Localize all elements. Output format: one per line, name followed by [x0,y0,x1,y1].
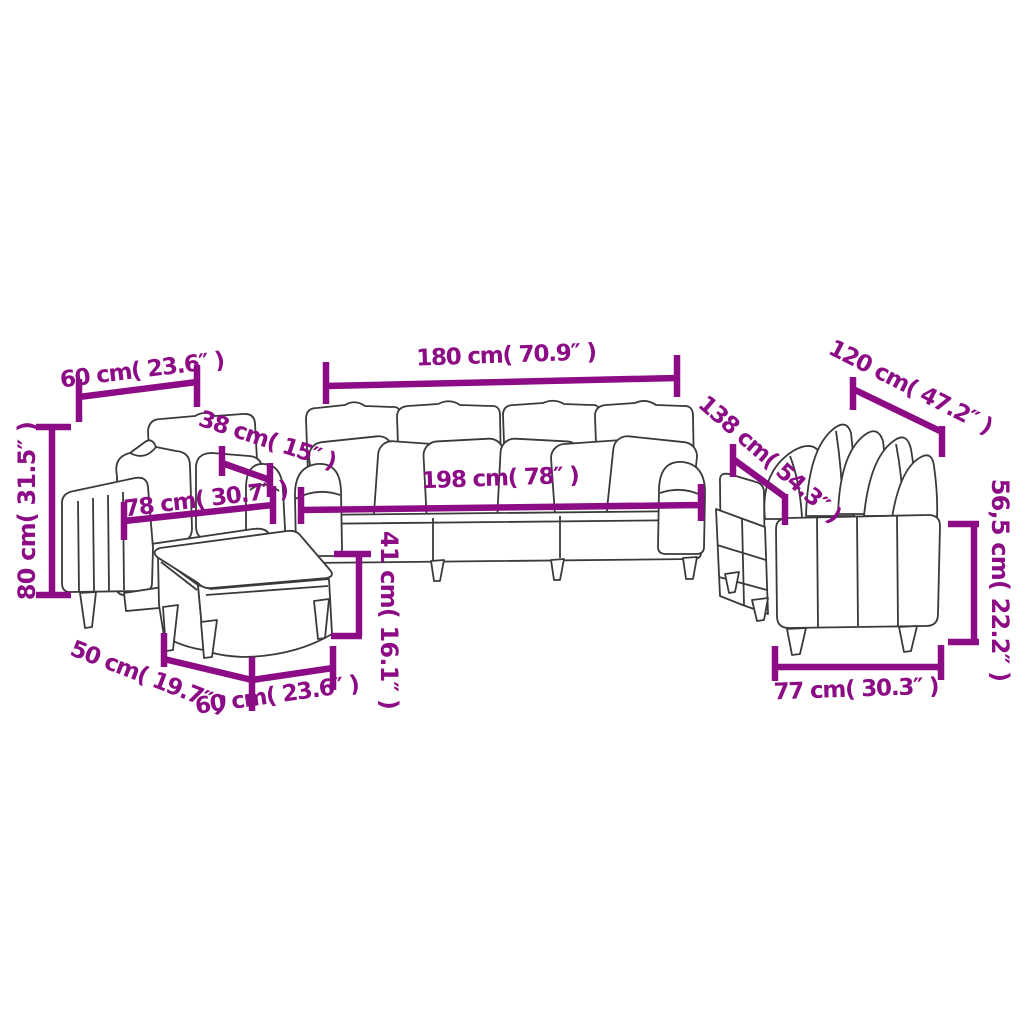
dim-sofa2-height [948,524,979,642]
dim-label-sofa2-height: 56,5 cm( 22.2″ ) [988,479,1012,682]
sofa2-leg [752,598,768,621]
armchair-leg [80,592,96,628]
sofa2-leg [787,628,806,655]
dim-label-footstool-height: 41 cm( 16.1″ ) [377,531,401,709]
dim-label-sofa2-depth: 77 cm( 30.3″ ) [773,676,939,705]
dim-label-armchair-height: 80 cm( 31.5″ ) [15,422,39,600]
dim-label-sofa3-back-width: 180 cm( 70.9″ ) [416,341,596,370]
footstool-drawing [155,531,332,658]
sofa2-leg [899,626,917,652]
sofa-leg [431,560,444,581]
product-dimension-diagram: 60 cm( 23.6″ ) 80 cm( 31.5″ ) 38 cm( 15″… [0,0,1024,1024]
dim-footstool-height [331,554,371,636]
sofa-leg [551,559,564,580]
dim-label-sofa3-total-width: 198 cm( 78″ ) [421,465,579,493]
sofa-leg [683,557,697,579]
